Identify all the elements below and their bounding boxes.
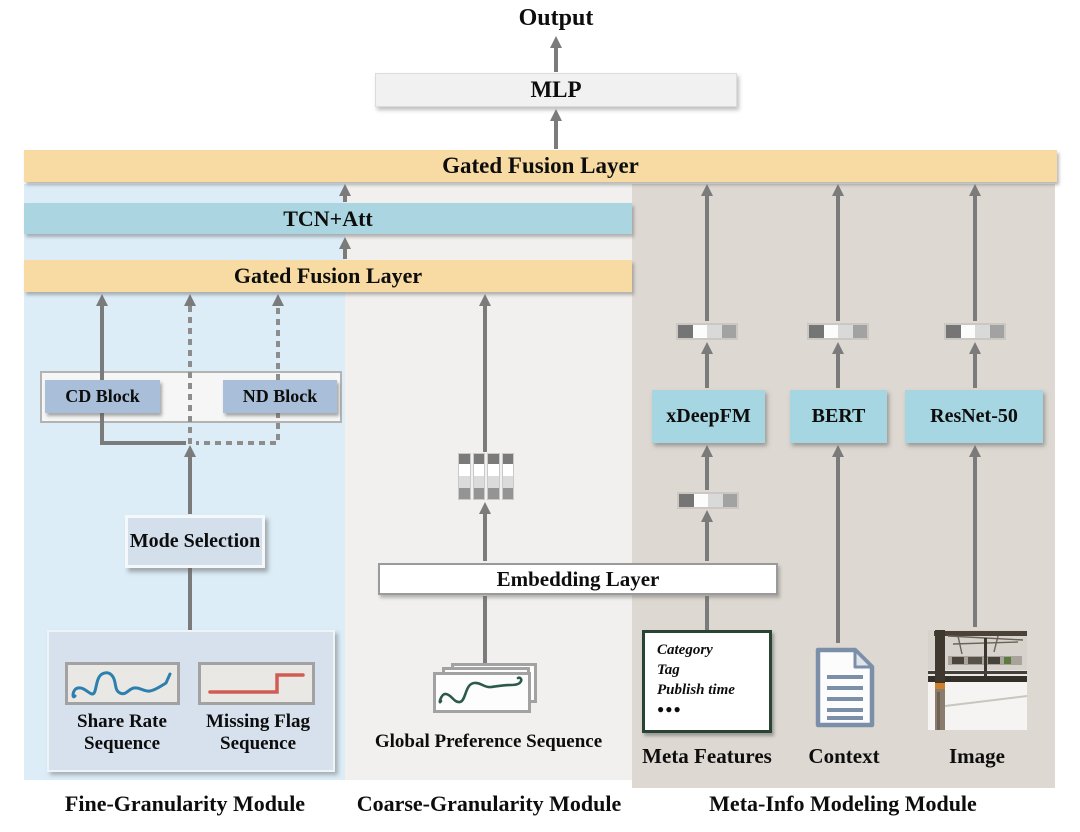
missing-flag-step-icon xyxy=(198,662,315,705)
coarse-module-title: Coarse-Granularity Module xyxy=(336,791,642,817)
embedded-sequence-bars-icon xyxy=(458,453,514,500)
embedding-vector-icon-resnet xyxy=(944,323,1006,340)
resnet50-box: ResNet-50 xyxy=(905,390,1043,443)
mode-selection-box: Mode Selection xyxy=(125,515,265,568)
embedding-vector-icon-meta-features xyxy=(677,492,739,509)
embedding-vector-icon-bert xyxy=(807,323,869,340)
meta-feature-publish-time: Publish time xyxy=(657,680,769,700)
cd-block-box: CD Block xyxy=(45,380,160,413)
meta-features-label: Meta Features xyxy=(627,744,787,769)
output-label: Output xyxy=(456,2,656,34)
document-icon xyxy=(813,646,877,730)
mlp-box: MLP xyxy=(375,73,737,107)
photo-icon xyxy=(928,630,1027,730)
sequence-cards-icon xyxy=(433,663,539,715)
tcn-att-bar: TCN+Att xyxy=(24,203,632,234)
architecture-figure: Output MLP Gated Fusion Layer TCN+Att Ga… xyxy=(0,0,1080,832)
ellipsis-dots-icon: ●●● xyxy=(657,700,769,718)
meta-feature-tag: Tag xyxy=(657,660,769,680)
gated-fusion-layer-mid-bar: Gated Fusion Layer xyxy=(24,260,632,292)
share-rate-curve-icon xyxy=(65,662,180,705)
meta-feature-category: Category xyxy=(657,640,769,660)
share-rate-sequence-label: Share Rate Sequence xyxy=(52,711,192,755)
gated-fusion-layer-top-bar: Gated Fusion Layer xyxy=(24,150,1057,182)
xdeepfm-box: xDeepFM xyxy=(652,390,765,443)
meta-features-box: Category Tag Publish time ●●● xyxy=(642,630,772,733)
context-label: Context xyxy=(784,744,904,769)
global-preference-sequence-label: Global Preference Sequence xyxy=(345,731,632,753)
fine-module-title: Fine-Granularity Module xyxy=(20,791,350,817)
nd-block-box: ND Block xyxy=(223,380,337,413)
embedding-layer-box: Embedding Layer xyxy=(378,563,778,595)
meta-module-title: Meta-Info Modeling Module xyxy=(693,791,993,817)
image-label: Image xyxy=(927,744,1027,769)
embedding-vector-icon-xdeepfm xyxy=(676,323,738,340)
missing-flag-sequence-label: Missing Flag Sequence xyxy=(188,711,328,755)
bert-box: BERT xyxy=(790,390,887,443)
